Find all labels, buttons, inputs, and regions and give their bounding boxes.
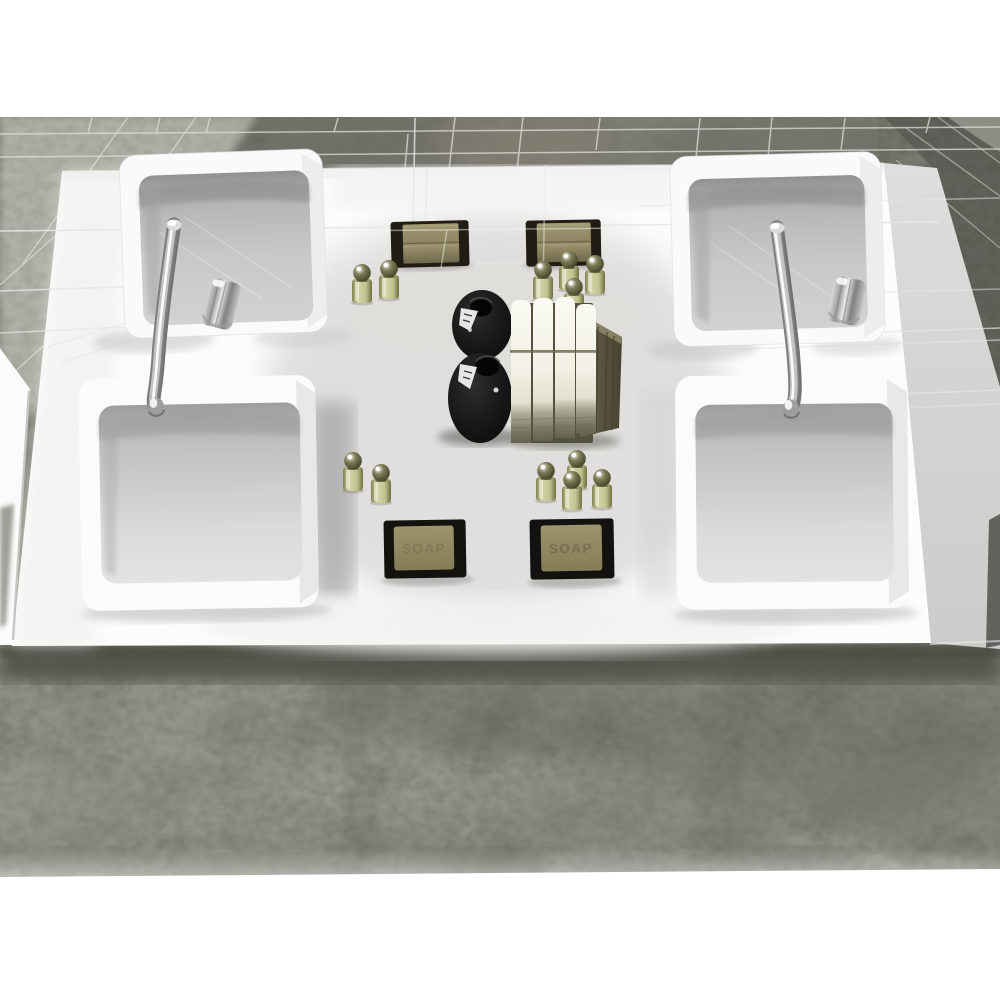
svg-text:SOAP: SOAP [402,541,447,557]
svg-text:SOAP: SOAP [549,541,594,557]
